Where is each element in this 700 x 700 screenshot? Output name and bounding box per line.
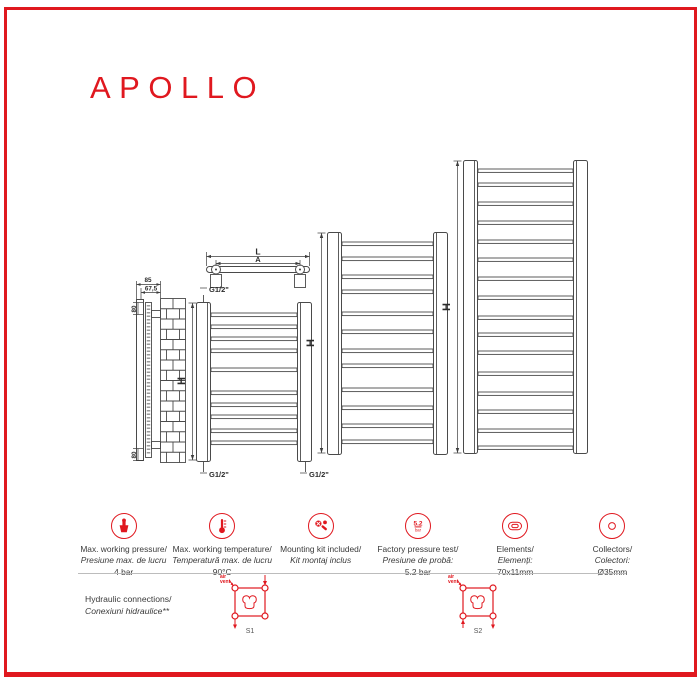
spec-elements: Elements/ Elemenți: 70x11mm xyxy=(467,513,564,578)
spec-mounting-kit: Mounting kit included/ Kit montaj inclus xyxy=(272,513,369,578)
radiator-medium: H xyxy=(305,233,448,455)
spec-label-en: Factory pressure test/ xyxy=(369,544,466,555)
height-dim-label-small: H xyxy=(176,377,188,385)
spec-label-en: Collectors/ xyxy=(564,544,661,555)
pressure-test-unit: bar xyxy=(415,527,422,532)
spec-label-ro: Presiune de probă: xyxy=(369,555,466,566)
pressure-test-icon: 5.2 bar xyxy=(405,513,431,539)
diagram-label: S2 xyxy=(474,628,483,635)
radiator-symbol-icon xyxy=(471,596,485,609)
height-dim-label-medium: H xyxy=(305,339,317,347)
height-dim-label-large: H xyxy=(441,303,453,311)
thread-label-top: G1/2" xyxy=(209,285,229,294)
hydraulic-connections-heading: Hydraulic connections/ Conexiuni hidraul… xyxy=(85,594,171,617)
datasheet-page: APOLLO 85 67,5 80 xyxy=(0,0,700,700)
spec-label-en: Max. working pressure/ xyxy=(75,544,172,555)
spec-label-ro: Presiune max. de lucru xyxy=(75,555,172,566)
thread-label-bottom-right: G1/2" xyxy=(309,470,329,479)
axis-depth-dim-label: 67,5 xyxy=(145,286,158,293)
spec-label-ro: Kit montaj inclus xyxy=(272,555,369,566)
air-vent-label: vent xyxy=(448,579,459,585)
radiator-symbol-icon xyxy=(243,596,257,609)
hydraulic-diagram-s2: air vent S2 xyxy=(446,572,508,636)
hydraulic-title-ro: Conexiuni hidraulice** xyxy=(85,606,171,618)
air-vent-label: vent xyxy=(220,579,231,585)
top-view: L A xyxy=(207,247,310,288)
top-offset-dim-label: 80 xyxy=(131,305,138,313)
spec-collectors: Collectors/ Colectori: Ø35mm xyxy=(564,513,661,578)
spec-label-ro: Elemenți: xyxy=(467,555,564,566)
spec-label-en: Max. working temperature/ xyxy=(172,544,272,555)
hydraulic-title-en: Hydraulic connections/ xyxy=(85,594,171,606)
mounting-kit-icon xyxy=(308,513,334,539)
spec-row: Max. working pressure/ Presiune max. de … xyxy=(75,513,661,578)
pressure-gauge-icon xyxy=(111,513,137,539)
element-profile-icon xyxy=(502,513,528,539)
side-view: 85 67,5 80 80 xyxy=(131,277,186,463)
spec-label-en: Mounting kit included/ xyxy=(272,544,369,555)
diagram-label: S1 xyxy=(246,628,255,635)
thread-label-bottom-left: G1/2" xyxy=(209,470,229,479)
depth-dim-label: 85 xyxy=(144,277,152,284)
collector-icon xyxy=(599,513,625,539)
thermometer-icon xyxy=(209,513,235,539)
section-divider xyxy=(78,573,626,574)
spec-max-pressure: Max. working pressure/ Presiune max. de … xyxy=(75,513,172,578)
spec-pressure-test: 5.2 bar Factory pressure test/ Presiune … xyxy=(369,513,466,578)
bottom-offset-dim-label: 80 xyxy=(131,451,138,459)
spec-label-en: Elements/ xyxy=(467,544,564,555)
axis-dim-label: A xyxy=(255,255,261,264)
hydraulic-diagram-s1: air vent S1 xyxy=(218,572,280,636)
spec-label-ro: Temperatură max. de lucru xyxy=(172,555,272,566)
spec-max-temperature: Max. working temperature/ Temperatură ma… xyxy=(172,513,272,578)
rungs-layer xyxy=(211,169,573,449)
spec-label-ro: Colectori: xyxy=(564,555,661,566)
